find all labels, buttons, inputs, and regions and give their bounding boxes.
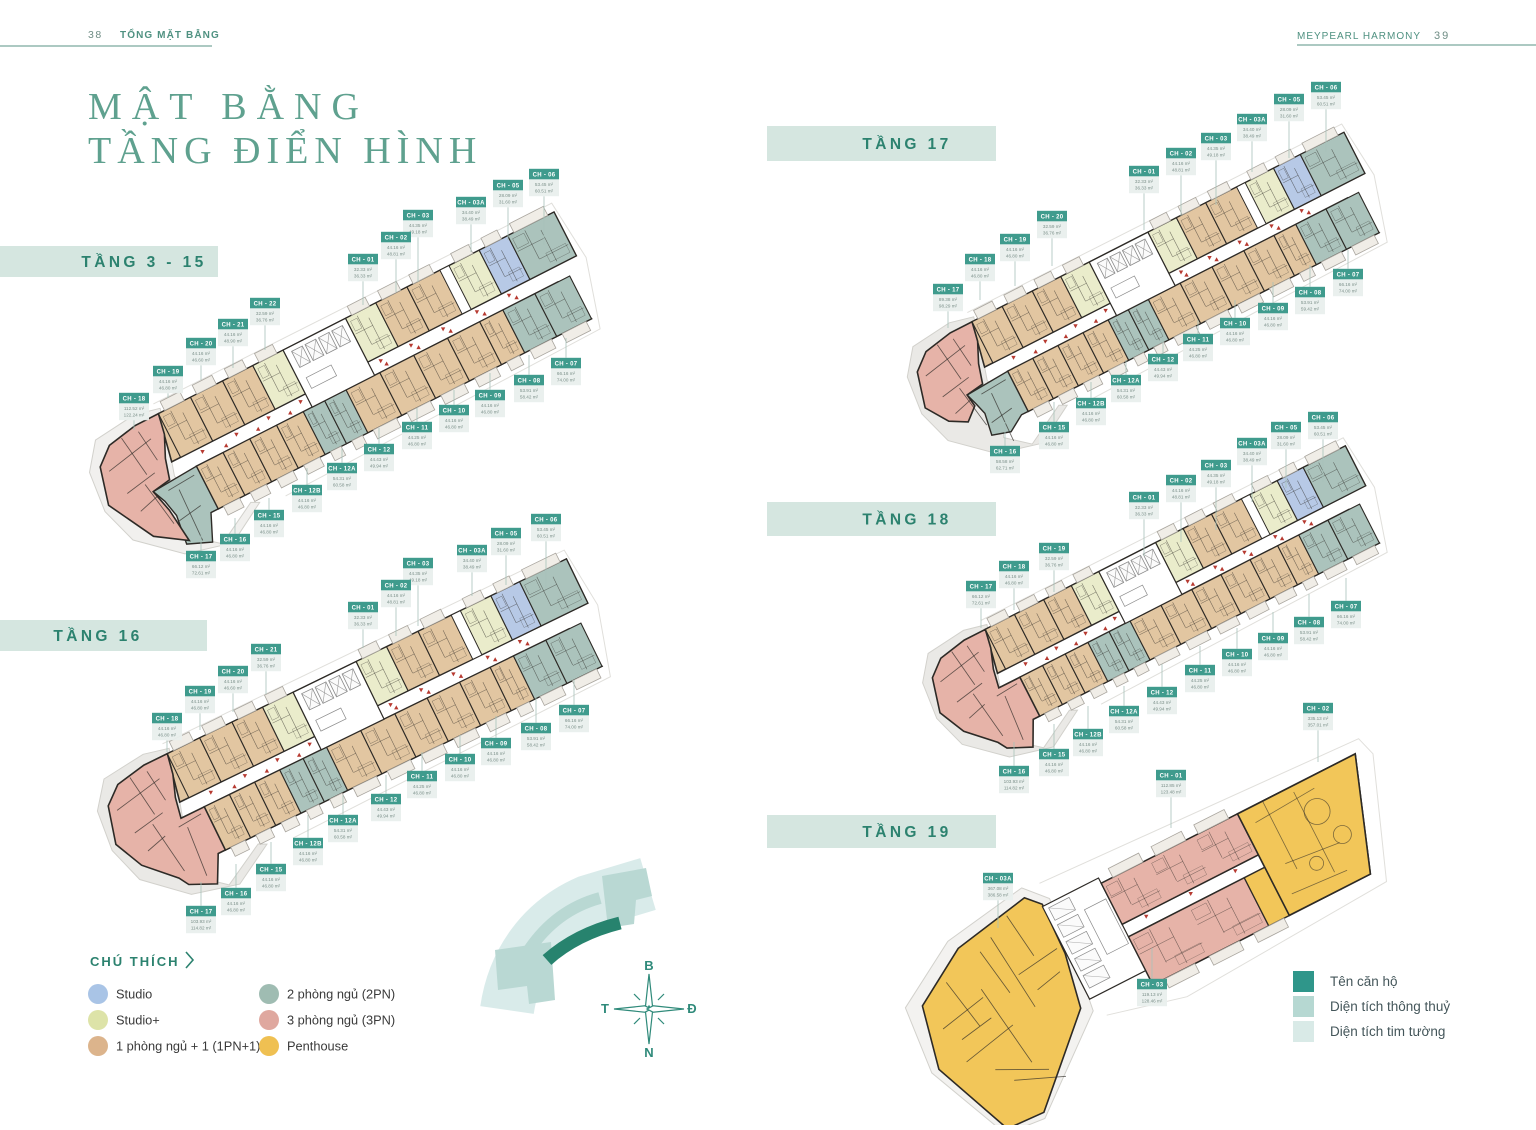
- svg-text:72.61 m²: 72.61 m²: [192, 571, 211, 576]
- svg-text:46.80 m²: 46.80 m²: [408, 442, 427, 447]
- svg-text:49.18 m²: 49.18 m²: [1207, 480, 1226, 485]
- svg-text:98.29 m²: 98.29 m²: [939, 304, 958, 309]
- svg-text:60.58 m²: 60.58 m²: [334, 835, 353, 840]
- svg-text:CH - 08: CH - 08: [525, 726, 548, 732]
- svg-text:3 phòng ngủ (3PN): 3 phòng ngủ (3PN): [287, 1013, 395, 1028]
- svg-text:44.16 m²: 44.16 m²: [445, 418, 464, 423]
- svg-text:46.80 m²: 46.80 m²: [971, 274, 990, 279]
- svg-text:44.16 m²: 44.16 m²: [387, 593, 406, 598]
- svg-text:36.33 m²: 36.33 m²: [354, 274, 373, 279]
- svg-text:62.71 m²: 62.71 m²: [996, 466, 1015, 471]
- svg-text:46.80 m²: 46.80 m²: [1079, 749, 1098, 754]
- svg-text:CH - 03A: CH - 03A: [1238, 441, 1266, 447]
- svg-text:CH - 18: CH - 18: [969, 257, 992, 263]
- svg-text:46.80 m²: 46.80 m²: [227, 908, 246, 913]
- svg-text:44.16 m²: 44.16 m²: [451, 767, 470, 772]
- svg-text:CH - 11: CH - 11: [1187, 337, 1210, 343]
- svg-text:44.43 m²: 44.43 m²: [1154, 367, 1173, 372]
- svg-text:53.45 m²: 53.45 m²: [535, 182, 554, 187]
- svg-text:CH - 22: CH - 22: [254, 301, 277, 307]
- svg-text:386.58 m²: 386.58 m²: [988, 893, 1009, 898]
- svg-text:28.09 m²: 28.09 m²: [1280, 107, 1299, 112]
- svg-text:119.13 m²: 119.13 m²: [1142, 992, 1163, 997]
- svg-text:46.80 m²: 46.80 m²: [1045, 769, 1064, 774]
- svg-text:28.09 m²: 28.09 m²: [1277, 435, 1296, 440]
- svg-text:53.45 m²: 53.45 m²: [537, 527, 556, 532]
- svg-text:CH - 12A: CH - 12A: [328, 466, 356, 472]
- svg-text:CH - 06: CH - 06: [1312, 415, 1335, 421]
- svg-text:49.94 m²: 49.94 m²: [1154, 374, 1173, 379]
- svg-text:103.93 m²: 103.93 m²: [191, 919, 212, 924]
- svg-text:59.42 m²: 59.42 m²: [1301, 307, 1320, 312]
- svg-text:CH - 17: CH - 17: [970, 584, 993, 590]
- svg-text:CH - 01: CH - 01: [352, 605, 375, 611]
- svg-text:44.35 m²: 44.35 m²: [409, 223, 428, 228]
- svg-text:CH - 02: CH - 02: [1170, 151, 1193, 157]
- svg-text:74.00 m²: 74.00 m²: [1337, 621, 1356, 626]
- svg-text:44.43 m²: 44.43 m²: [370, 457, 389, 462]
- svg-text:CH - 15: CH - 15: [260, 867, 283, 873]
- svg-text:CH - 10: CH - 10: [449, 757, 472, 763]
- svg-text:CH - 06: CH - 06: [1315, 85, 1338, 91]
- svg-text:53.91 m²: 53.91 m²: [527, 736, 546, 741]
- svg-text:44.16 m²: 44.16 m²: [158, 726, 177, 731]
- svg-text:31.60 m²: 31.60 m²: [1280, 114, 1299, 119]
- svg-text:CH - 02: CH - 02: [385, 583, 408, 589]
- svg-text:CH - 21: CH - 21: [222, 322, 245, 328]
- svg-text:44.16 m²: 44.16 m²: [481, 403, 500, 408]
- svg-text:CH - 15: CH - 15: [1043, 752, 1066, 758]
- svg-text:CH - 16: CH - 16: [1003, 769, 1026, 775]
- svg-text:CH - 19: CH - 19: [1004, 237, 1027, 243]
- svg-text:CH - 18: CH - 18: [123, 396, 146, 402]
- svg-text:32.33 m²: 32.33 m²: [1135, 179, 1154, 184]
- svg-text:34.40 m²: 34.40 m²: [1243, 127, 1262, 132]
- svg-text:46.80 m²: 46.80 m²: [1082, 418, 1101, 423]
- svg-text:CH - 03: CH - 03: [1205, 136, 1228, 142]
- svg-text:CH - 11: CH - 11: [1189, 668, 1212, 674]
- svg-text:89.38 m²: 89.38 m²: [939, 297, 958, 302]
- svg-text:CH - 05: CH - 05: [497, 183, 520, 189]
- svg-text:49.18 m²: 49.18 m²: [1207, 153, 1226, 158]
- svg-text:MẬT BẰNG: MẬT BẰNG: [88, 85, 369, 128]
- svg-text:CH - 02: CH - 02: [1170, 478, 1193, 484]
- svg-text:335.13 m²: 335.13 m²: [1308, 716, 1329, 721]
- svg-text:112.85 m²: 112.85 m²: [1161, 783, 1182, 788]
- svg-text:46.80 m²: 46.80 m²: [1226, 338, 1245, 343]
- svg-text:CH - 17: CH - 17: [190, 909, 213, 915]
- svg-text:46.80 m²: 46.80 m²: [1005, 581, 1024, 586]
- svg-text:31.60 m²: 31.60 m²: [499, 200, 518, 205]
- svg-text:49.94 m²: 49.94 m²: [370, 464, 389, 469]
- svg-text:46.80 m²: 46.80 m²: [299, 858, 318, 863]
- svg-text:60.51 m²: 60.51 m²: [1317, 102, 1336, 107]
- svg-text:CH - 07: CH - 07: [1337, 272, 1360, 278]
- svg-text:54.31 m²: 54.31 m²: [333, 476, 352, 481]
- svg-text:CH - 10: CH - 10: [443, 408, 466, 414]
- svg-text:32.33 m²: 32.33 m²: [354, 615, 373, 620]
- svg-text:44.25 m²: 44.25 m²: [1191, 678, 1210, 683]
- svg-text:44.16 m²: 44.16 m²: [262, 877, 281, 882]
- svg-text:44.16 m²: 44.16 m²: [1226, 331, 1245, 336]
- svg-text:38.49 m²: 38.49 m²: [1243, 458, 1262, 463]
- svg-text:28.09 m²: 28.09 m²: [499, 193, 518, 198]
- svg-text:58.58 m²: 58.58 m²: [996, 459, 1015, 464]
- svg-text:CH - 16: CH - 16: [225, 891, 248, 897]
- svg-text:CH - 03A: CH - 03A: [1238, 117, 1266, 123]
- svg-text:44.16 m²: 44.16 m²: [1228, 662, 1247, 667]
- svg-text:36.76 m²: 36.76 m²: [1043, 231, 1062, 236]
- svg-text:TẦNG 3 - 15: TẦNG 3 - 15: [81, 254, 206, 271]
- svg-text:122.24 m²: 122.24 m²: [124, 413, 145, 418]
- svg-text:60.58 m²: 60.58 m²: [1117, 395, 1136, 400]
- svg-text:49.18 m²: 49.18 m²: [409, 578, 428, 583]
- svg-text:CH - 03: CH - 03: [407, 213, 430, 219]
- svg-text:53.91 m²: 53.91 m²: [520, 388, 539, 393]
- svg-text:CH - 15: CH - 15: [258, 513, 281, 519]
- svg-text:44.16 m²: 44.16 m²: [1082, 411, 1101, 416]
- svg-text:44.16 m²: 44.16 m²: [1045, 435, 1064, 440]
- svg-text:38.49 m²: 38.49 m²: [463, 565, 482, 570]
- svg-text:31.60 m²: 31.60 m²: [497, 548, 516, 553]
- svg-text:46.80 m²: 46.80 m²: [481, 410, 500, 415]
- svg-text:46.80 m²: 46.80 m²: [226, 554, 245, 559]
- svg-text:CH - 18: CH - 18: [1003, 564, 1026, 570]
- svg-text:CH - 07: CH - 07: [555, 361, 578, 367]
- svg-text:60.58 m²: 60.58 m²: [1115, 726, 1134, 731]
- svg-text:46.80 m²: 46.80 m²: [298, 505, 317, 510]
- svg-text:CH - 19: CH - 19: [157, 369, 180, 375]
- svg-text:32.59 m²: 32.59 m²: [1045, 556, 1064, 561]
- svg-text:44.16 m²: 44.16 m²: [191, 699, 210, 704]
- svg-text:CH - 17: CH - 17: [190, 554, 213, 560]
- svg-text:CHÚ THÍCH: CHÚ THÍCH: [90, 954, 180, 969]
- svg-text:66.16 m²: 66.16 m²: [565, 718, 584, 723]
- svg-text:CH - 18: CH - 18: [156, 716, 179, 722]
- svg-text:Diện tích tim tường: Diện tích tim tường: [1330, 1024, 1445, 1039]
- svg-text:31.60 m²: 31.60 m²: [1277, 442, 1296, 447]
- svg-text:CH - 20: CH - 20: [190, 341, 213, 347]
- svg-text:44.43 m²: 44.43 m²: [1153, 700, 1172, 705]
- svg-text:32.33 m²: 32.33 m²: [354, 267, 373, 272]
- svg-text:CH - 16: CH - 16: [224, 537, 247, 543]
- svg-text:44.16 m²: 44.16 m²: [1045, 762, 1064, 767]
- svg-text:74.00 m²: 74.00 m²: [557, 378, 576, 383]
- svg-text:34.40 m²: 34.40 m²: [1243, 451, 1262, 456]
- svg-text:CH - 12B: CH - 12B: [1077, 401, 1105, 407]
- svg-text:N: N: [644, 1045, 653, 1060]
- svg-text:CH - 09: CH - 09: [479, 393, 502, 399]
- svg-text:66.12 m²: 66.12 m²: [192, 564, 211, 569]
- svg-text:44.35 m²: 44.35 m²: [1207, 473, 1226, 478]
- svg-text:46.60 m²: 46.60 m²: [192, 358, 211, 363]
- svg-text:CH - 20: CH - 20: [222, 669, 245, 675]
- svg-text:CH - 17: CH - 17: [937, 287, 960, 293]
- svg-text:32.59 m²: 32.59 m²: [1043, 224, 1062, 229]
- svg-text:TẦNG 18: TẦNG 18: [862, 512, 951, 529]
- svg-text:114.82 m²: 114.82 m²: [191, 926, 212, 931]
- svg-text:CH - 08: CH - 08: [1299, 290, 1322, 296]
- svg-text:36.33 m²: 36.33 m²: [354, 622, 373, 627]
- svg-text:72.61 m²: 72.61 m²: [972, 601, 991, 606]
- svg-text:46.80 m²: 46.80 m²: [445, 425, 464, 430]
- svg-text:46.80 m²: 46.80 m²: [260, 530, 279, 535]
- svg-text:1 phòng ngủ + 1 (1PN+1): 1 phòng ngủ + 1 (1PN+1): [116, 1039, 260, 1054]
- svg-text:128.46 m²: 128.46 m²: [1142, 999, 1163, 1004]
- svg-text:357.01 m²: 357.01 m²: [1308, 723, 1329, 728]
- svg-text:Tên căn hộ: Tên căn hộ: [1330, 974, 1398, 989]
- svg-text:Penthouse: Penthouse: [287, 1039, 348, 1054]
- svg-text:28.09 m²: 28.09 m²: [497, 541, 516, 546]
- svg-text:44.16 m²: 44.16 m²: [487, 751, 506, 756]
- svg-text:46.80 m²: 46.80 m²: [158, 733, 177, 738]
- svg-text:CH - 11: CH - 11: [411, 774, 434, 780]
- svg-text:66.16 m²: 66.16 m²: [1339, 282, 1358, 287]
- svg-text:44.16 m²: 44.16 m²: [1079, 742, 1098, 747]
- svg-text:58.42 m²: 58.42 m²: [527, 743, 546, 748]
- svg-text:CH - 09: CH - 09: [1262, 636, 1285, 642]
- svg-text:TỔNG MẶT BẪNG: TỔNG MẶT BẪNG: [120, 28, 220, 41]
- svg-text:53.45 m²: 53.45 m²: [1317, 95, 1336, 100]
- svg-text:36.33 m²: 36.33 m²: [1135, 186, 1154, 191]
- svg-text:T: T: [601, 1001, 609, 1016]
- svg-text:53.91 m²: 53.91 m²: [1300, 630, 1319, 635]
- svg-text:44.35 m²: 44.35 m²: [409, 571, 428, 576]
- svg-text:46.80 m²: 46.80 m²: [262, 884, 281, 889]
- svg-text:CH - 02: CH - 02: [1307, 706, 1330, 712]
- svg-text:44.16 m²: 44.16 m²: [224, 332, 243, 337]
- svg-text:CH - 19: CH - 19: [189, 689, 212, 695]
- svg-text:TẦNG 16: TẦNG 16: [53, 628, 142, 645]
- svg-text:46.80 m²: 46.80 m²: [159, 386, 178, 391]
- svg-text:46.80 m²: 46.80 m²: [1191, 685, 1210, 690]
- svg-text:60.51 m²: 60.51 m²: [1314, 432, 1333, 437]
- svg-text:44.16 m²: 44.16 m²: [298, 498, 317, 503]
- svg-text:CH - 01: CH - 01: [1160, 773, 1183, 779]
- svg-text:74.00 m²: 74.00 m²: [1339, 289, 1358, 294]
- svg-text:CH - 07: CH - 07: [563, 708, 586, 714]
- svg-text:CH - 02: CH - 02: [385, 235, 408, 241]
- svg-text:CH - 03A: CH - 03A: [984, 876, 1012, 882]
- svg-text:CH - 03A: CH - 03A: [457, 200, 485, 206]
- svg-text:CH - 12B: CH - 12B: [294, 841, 322, 847]
- svg-text:CH - 12B: CH - 12B: [1074, 732, 1102, 738]
- svg-text:123.48 m²: 123.48 m²: [1161, 790, 1182, 795]
- svg-text:Diện tích thông thuỷ: Diện tích thông thuỷ: [1330, 999, 1450, 1014]
- svg-text:44.16 m²: 44.16 m²: [224, 679, 243, 684]
- svg-text:58.42 m²: 58.42 m²: [520, 395, 539, 400]
- svg-text:Studio+: Studio+: [116, 1013, 160, 1028]
- svg-text:CH - 03A: CH - 03A: [458, 548, 486, 554]
- svg-text:CH - 15: CH - 15: [1043, 425, 1066, 431]
- svg-text:44.16 m²: 44.16 m²: [1005, 574, 1024, 579]
- svg-text:CH - 10: CH - 10: [1224, 321, 1247, 327]
- svg-text:44.16 m²: 44.16 m²: [1264, 646, 1283, 651]
- svg-text:38.49 m²: 38.49 m²: [1243, 134, 1262, 139]
- svg-text:44.16 m²: 44.16 m²: [1172, 488, 1191, 493]
- svg-text:46.80 m²: 46.80 m²: [1189, 354, 1208, 359]
- svg-text:CH - 12B: CH - 12B: [293, 488, 321, 494]
- svg-text:114.82 m²: 114.82 m²: [1004, 786, 1025, 791]
- svg-text:CH - 06: CH - 06: [535, 517, 558, 523]
- svg-text:367.08 m²: 367.08 m²: [988, 886, 1009, 891]
- svg-text:32.59 m²: 32.59 m²: [257, 657, 276, 662]
- svg-text:44.16 m²: 44.16 m²: [226, 547, 245, 552]
- svg-text:44.16 m²: 44.16 m²: [260, 523, 279, 528]
- svg-text:CH - 09: CH - 09: [485, 741, 508, 747]
- svg-text:54.31 m²: 54.31 m²: [1117, 388, 1136, 393]
- svg-text:MEYPEARL HARMONY: MEYPEARL HARMONY: [1297, 31, 1421, 42]
- svg-text:60.51 m²: 60.51 m²: [537, 534, 556, 539]
- svg-text:32.59 m²: 32.59 m²: [256, 311, 275, 316]
- svg-text:36.33 m²: 36.33 m²: [1135, 512, 1154, 517]
- svg-text:44.16 m²: 44.16 m²: [1264, 316, 1283, 321]
- svg-text:46.80 m²: 46.80 m²: [1045, 442, 1064, 447]
- svg-text:36.76 m²: 36.76 m²: [1045, 563, 1064, 568]
- svg-text:44.35 m²: 44.35 m²: [1207, 146, 1226, 151]
- svg-text:Đ: Đ: [687, 1001, 696, 1016]
- svg-text:53.91 m²: 53.91 m²: [1301, 300, 1320, 305]
- svg-text:TẦNG ĐIỂN HÌNH: TẦNG ĐIỂN HÌNH: [88, 129, 482, 172]
- svg-text:CH - 12: CH - 12: [368, 447, 391, 453]
- svg-text:66.16 m²: 66.16 m²: [557, 371, 576, 376]
- svg-text:46.80 m²: 46.80 m²: [1264, 323, 1283, 328]
- svg-text:48.81 m²: 48.81 m²: [387, 600, 406, 605]
- svg-text:48.81 m²: 48.81 m²: [387, 252, 406, 257]
- svg-text:66.16 m²: 66.16 m²: [1337, 614, 1356, 619]
- svg-text:44.16 m²: 44.16 m²: [387, 245, 406, 250]
- svg-text:54.31 m²: 54.31 m²: [1115, 719, 1134, 724]
- svg-text:CH - 08: CH - 08: [518, 378, 541, 384]
- svg-text:CH - 03: CH - 03: [1141, 982, 1164, 988]
- svg-text:46.80 m²: 46.80 m²: [1006, 254, 1025, 259]
- svg-text:46.80 m²: 46.80 m²: [1228, 669, 1247, 674]
- svg-text:CH - 03: CH - 03: [407, 561, 430, 567]
- svg-text:CH - 09: CH - 09: [1262, 306, 1285, 312]
- svg-text:34.40 m²: 34.40 m²: [462, 210, 481, 215]
- svg-text:CH - 01: CH - 01: [1133, 169, 1156, 175]
- svg-text:CH - 05: CH - 05: [495, 531, 518, 537]
- svg-text:54.31 m²: 54.31 m²: [334, 828, 353, 833]
- svg-text:46.80 m²: 46.80 m²: [413, 791, 432, 796]
- svg-text:36.76 m²: 36.76 m²: [256, 318, 275, 323]
- svg-text:CH - 06: CH - 06: [533, 172, 556, 178]
- svg-text:44.16 m²: 44.16 m²: [971, 267, 990, 272]
- svg-text:44.16 m²: 44.16 m²: [159, 379, 178, 384]
- svg-text:CH - 16: CH - 16: [994, 449, 1017, 455]
- svg-text:44.25 m²: 44.25 m²: [408, 435, 427, 440]
- svg-text:48.90 m²: 48.90 m²: [224, 339, 243, 344]
- svg-text:46.80 m²: 46.80 m²: [1264, 653, 1283, 658]
- svg-text:58.42 m²: 58.42 m²: [1300, 637, 1319, 642]
- svg-text:49.94 m²: 49.94 m²: [377, 814, 396, 819]
- svg-text:46.60 m²: 46.60 m²: [224, 686, 243, 691]
- svg-text:CH - 11: CH - 11: [406, 425, 429, 431]
- svg-text:TẦNG 19: TẦNG 19: [862, 824, 951, 841]
- svg-text:CH - 01: CH - 01: [1133, 495, 1156, 501]
- svg-text:CH - 05: CH - 05: [1275, 425, 1298, 431]
- svg-text:34.40 m²: 34.40 m²: [463, 558, 482, 563]
- svg-text:103.93 m²: 103.93 m²: [1004, 779, 1025, 784]
- svg-text:TẦNG 17: TẦNG 17: [862, 136, 951, 153]
- svg-text:49.94 m²: 49.94 m²: [1153, 707, 1172, 712]
- svg-text:CH - 12A: CH - 12A: [1110, 709, 1138, 715]
- svg-text:49.18 m²: 49.18 m²: [409, 230, 428, 235]
- svg-text:CH - 01: CH - 01: [352, 257, 375, 263]
- svg-text:44.16 m²: 44.16 m²: [299, 851, 318, 856]
- svg-text:CH - 03: CH - 03: [1205, 463, 1228, 469]
- svg-text:CH - 12: CH - 12: [375, 797, 398, 803]
- svg-text:112.52 m²: 112.52 m²: [124, 406, 145, 411]
- svg-text:46.80 m²: 46.80 m²: [191, 706, 210, 711]
- svg-text:CH - 12A: CH - 12A: [1112, 378, 1140, 384]
- svg-text:CH - 10: CH - 10: [1226, 652, 1249, 658]
- svg-text:44.16 m²: 44.16 m²: [1006, 247, 1025, 252]
- svg-text:39: 39: [1434, 30, 1450, 42]
- svg-text:CH - 07: CH - 07: [1335, 604, 1358, 610]
- svg-text:60.58 m²: 60.58 m²: [333, 483, 352, 488]
- svg-text:44.43 m²: 44.43 m²: [377, 807, 396, 812]
- svg-text:2 phòng ngủ (2PN): 2 phòng ngủ (2PN): [287, 987, 395, 1002]
- svg-text:44.16 m²: 44.16 m²: [1172, 161, 1191, 166]
- svg-text:46.80 m²: 46.80 m²: [451, 774, 470, 779]
- svg-text:32.33 m²: 32.33 m²: [1135, 505, 1154, 510]
- svg-text:38: 38: [88, 29, 103, 41]
- svg-text:B: B: [644, 958, 653, 973]
- svg-text:74.00 m²: 74.00 m²: [565, 725, 584, 730]
- svg-text:CH - 12A: CH - 12A: [329, 818, 357, 824]
- svg-text:44.16 m²: 44.16 m²: [192, 351, 211, 356]
- svg-text:66.12 m²: 66.12 m²: [972, 594, 991, 599]
- svg-text:36.76 m²: 36.76 m²: [257, 664, 276, 669]
- svg-text:CH - 19: CH - 19: [1043, 546, 1066, 552]
- svg-text:48.81 m²: 48.81 m²: [1172, 168, 1191, 173]
- svg-text:53.45 m²: 53.45 m²: [1314, 425, 1333, 430]
- svg-text:CH - 12: CH - 12: [1152, 357, 1175, 363]
- svg-text:CH - 21: CH - 21: [255, 647, 278, 653]
- svg-text:44.25 m²: 44.25 m²: [413, 784, 432, 789]
- svg-text:CH - 20: CH - 20: [1041, 214, 1064, 220]
- svg-text:CH - 12: CH - 12: [1151, 690, 1174, 696]
- svg-text:44.25 m²: 44.25 m²: [1189, 347, 1208, 352]
- svg-text:CH - 05: CH - 05: [1278, 97, 1301, 103]
- svg-text:46.80 m²: 46.80 m²: [487, 758, 506, 763]
- svg-text:60.51 m²: 60.51 m²: [535, 189, 554, 194]
- svg-text:44.16 m²: 44.16 m²: [227, 901, 246, 906]
- svg-text:38.49 m²: 38.49 m²: [462, 217, 481, 222]
- svg-text:48.81 m²: 48.81 m²: [1172, 495, 1191, 500]
- svg-text:Studio: Studio: [116, 987, 152, 1002]
- svg-text:CH - 08: CH - 08: [1298, 620, 1321, 626]
